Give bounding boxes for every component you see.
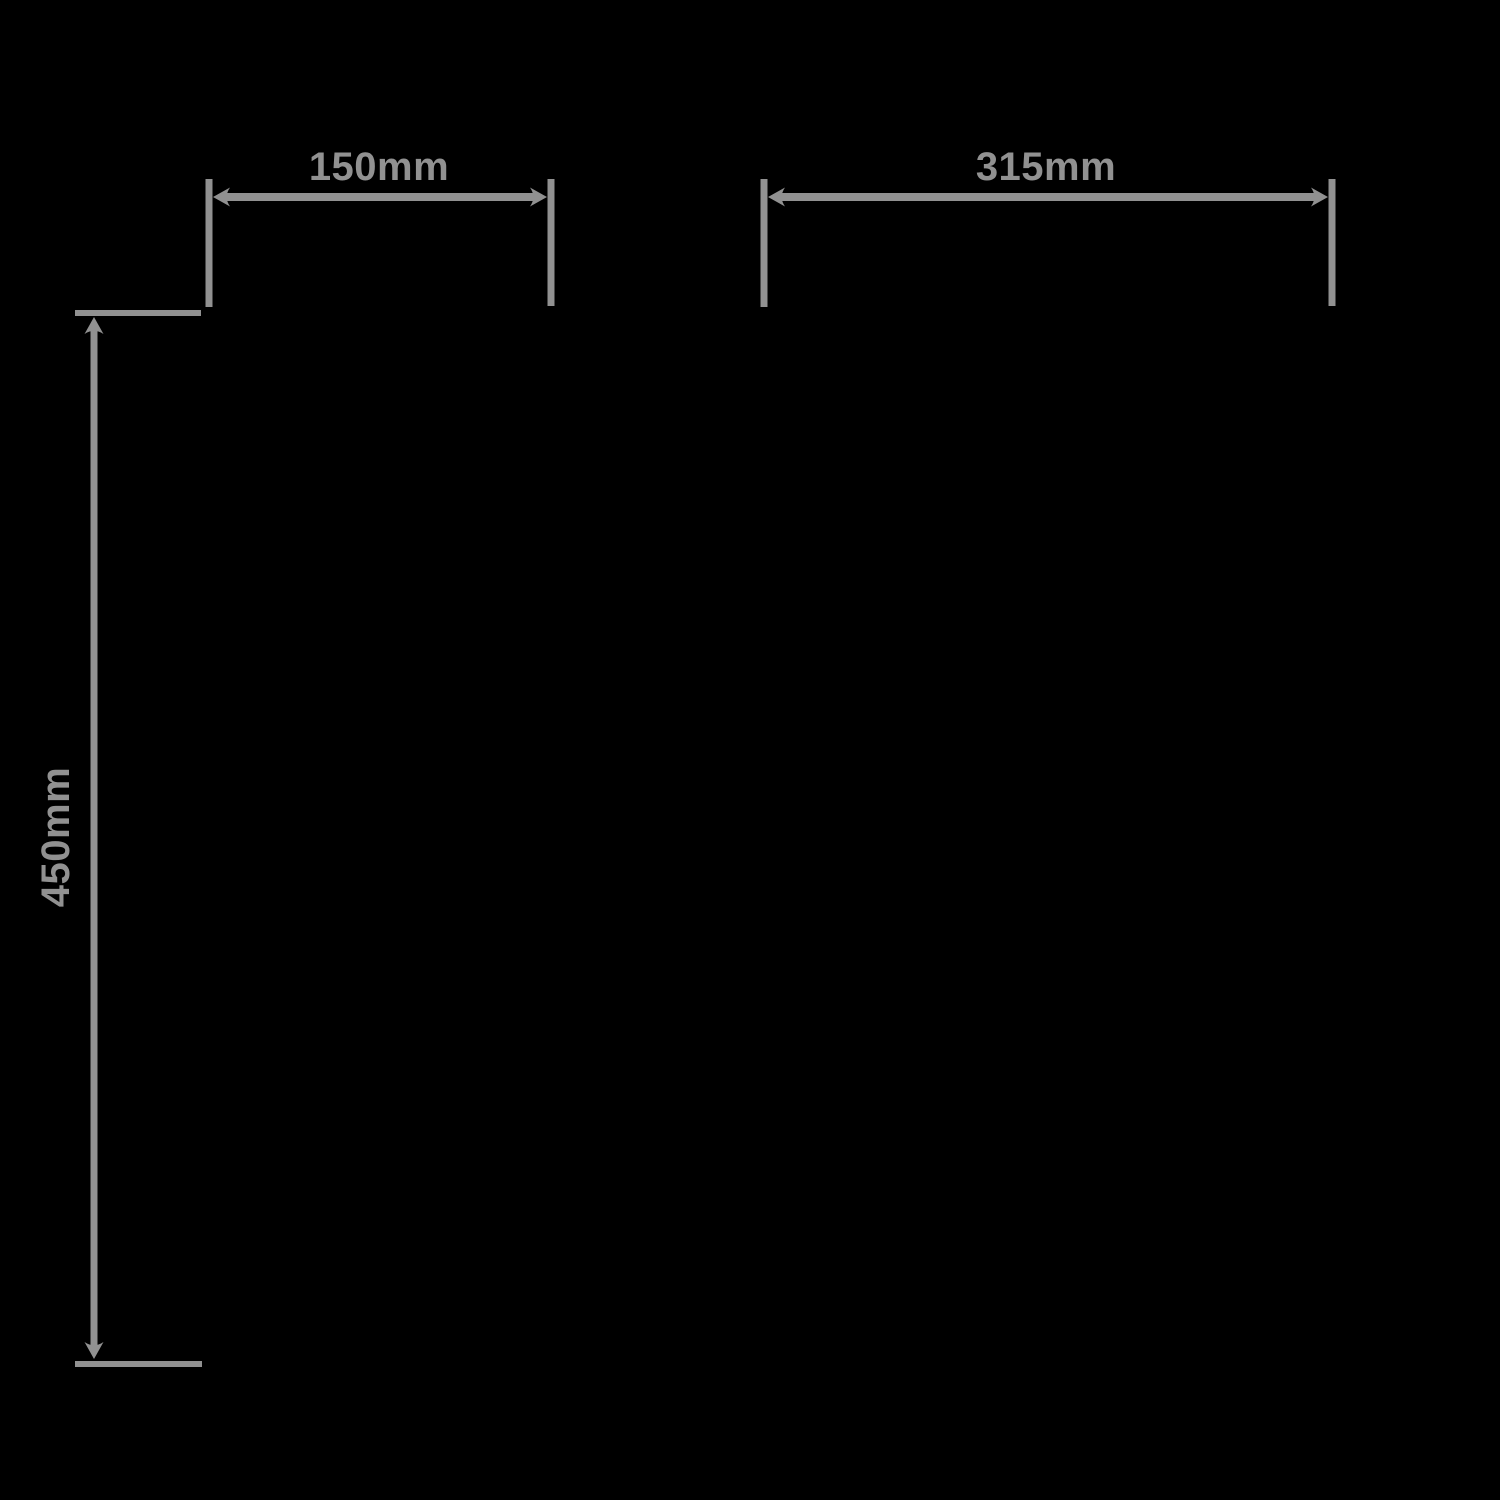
dimension-150mm: 150mm bbox=[209, 145, 551, 307]
dimension-315mm: 315mm bbox=[764, 145, 1332, 307]
dimension-diagram: 150mm 315mm 450mm bbox=[0, 0, 1500, 1500]
dimension-150mm-label: 150mm bbox=[309, 145, 449, 189]
dimension-450mm-label: 450mm bbox=[34, 767, 78, 907]
dimension-450mm: 450mm bbox=[34, 313, 202, 1364]
dimension-315mm-label: 315mm bbox=[976, 145, 1116, 189]
dimension-diagram-svg: 150mm 315mm 450mm bbox=[0, 0, 1500, 1500]
